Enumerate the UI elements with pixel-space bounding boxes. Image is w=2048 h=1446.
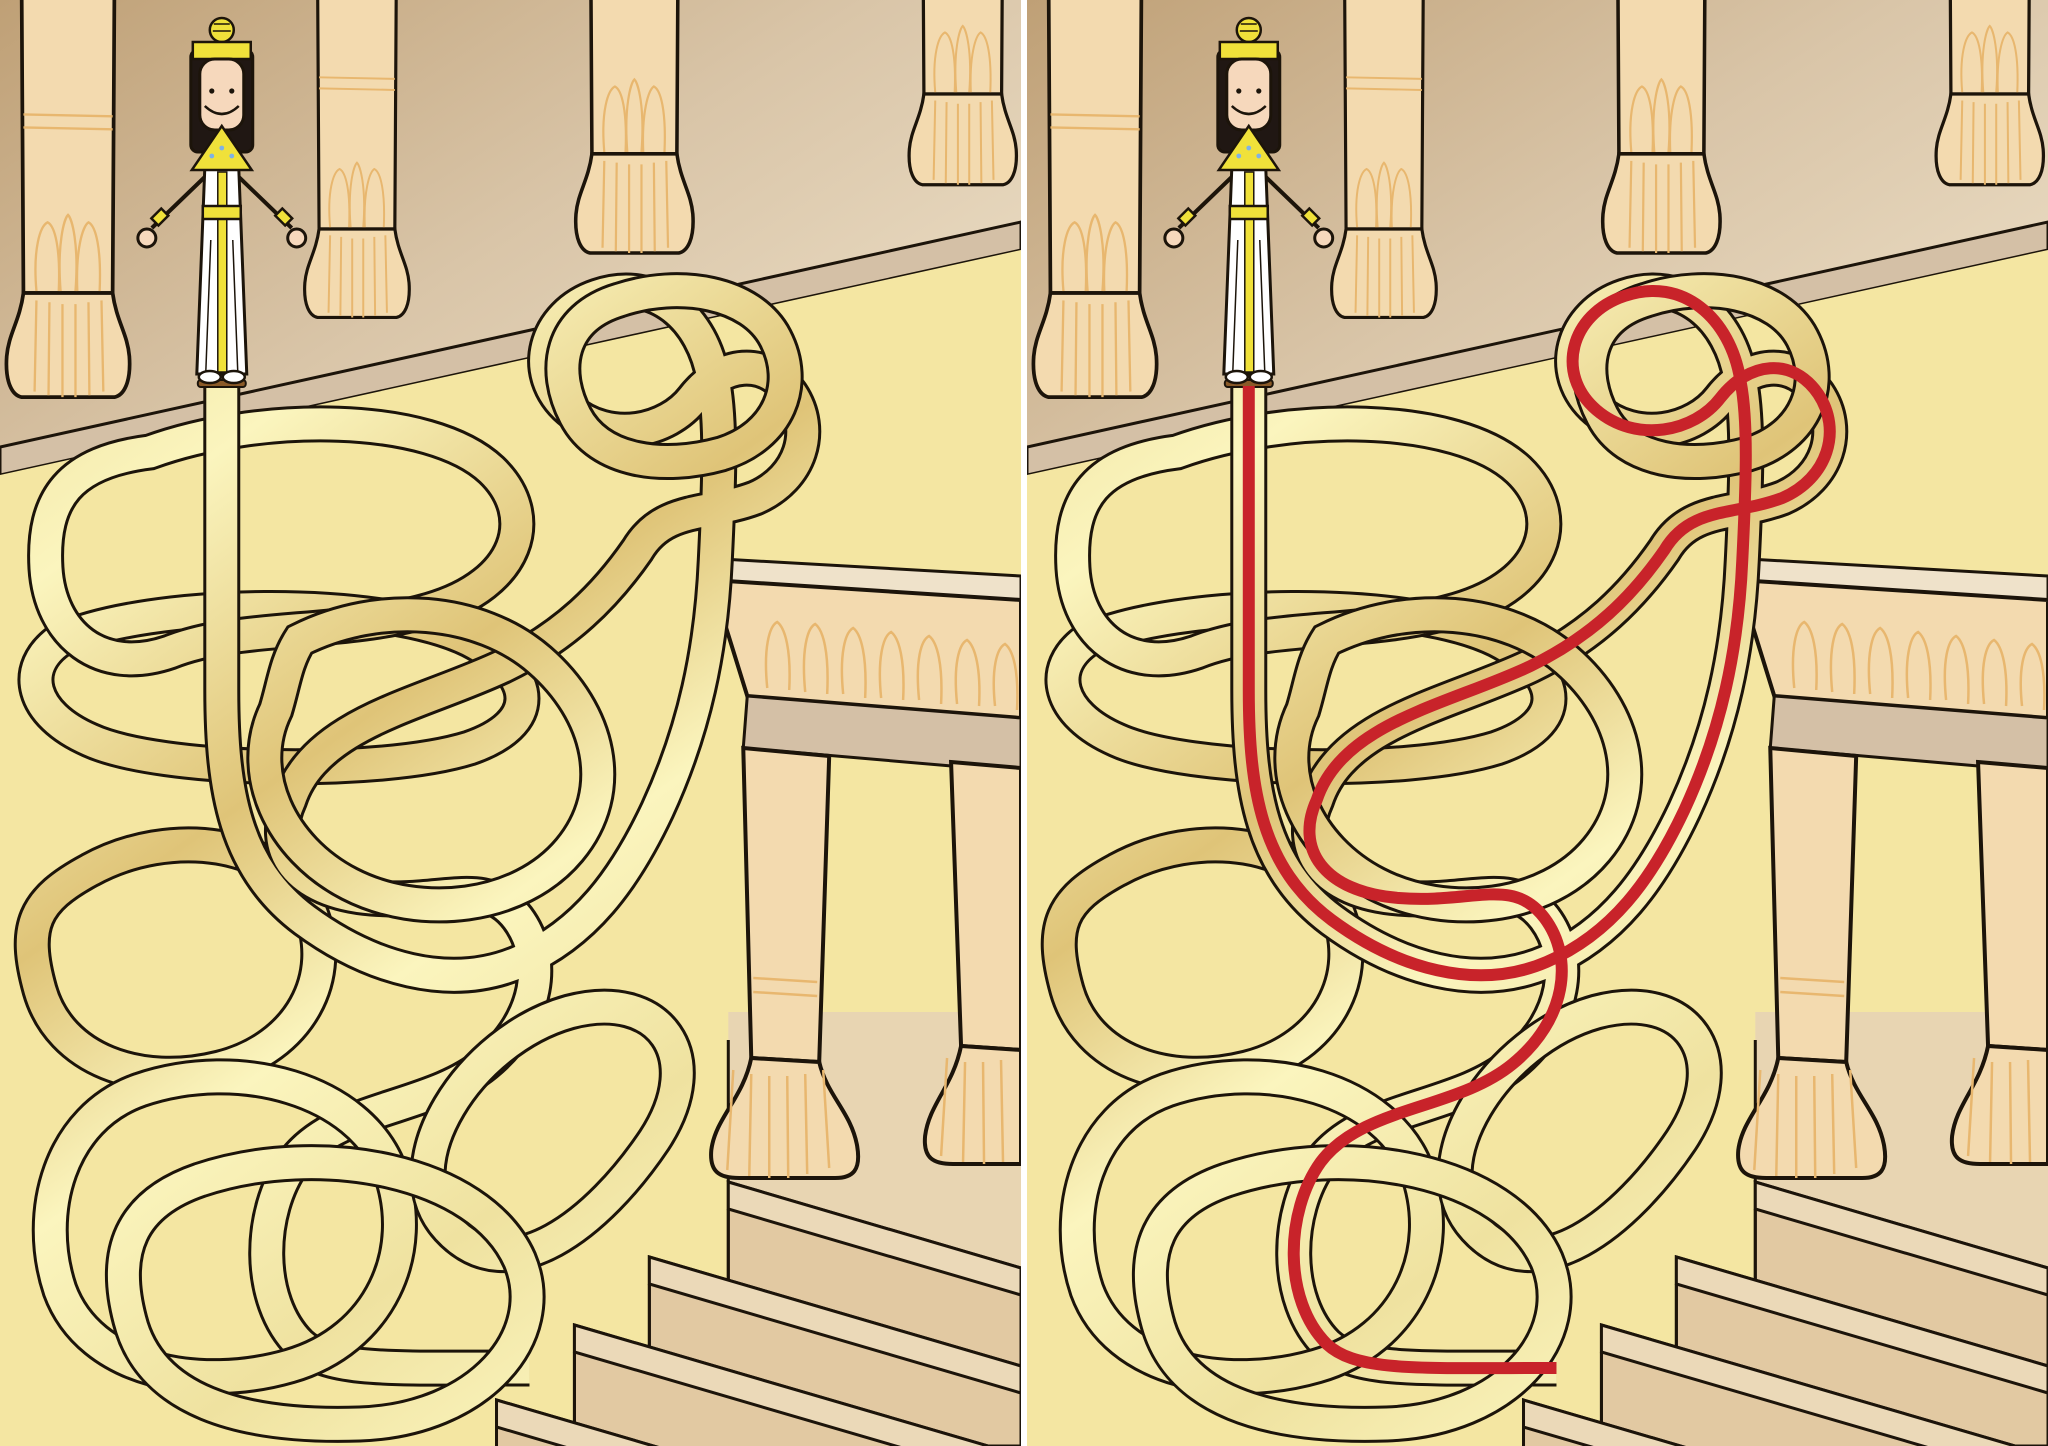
maze-scene-unsolved [0, 0, 1021, 1446]
maze-scene-solved [1027, 0, 2048, 1446]
panel-maze-unsolved [0, 0, 1021, 1446]
maze-worksheet [0, 0, 2048, 1446]
panel-maze-solved [1027, 0, 2048, 1446]
